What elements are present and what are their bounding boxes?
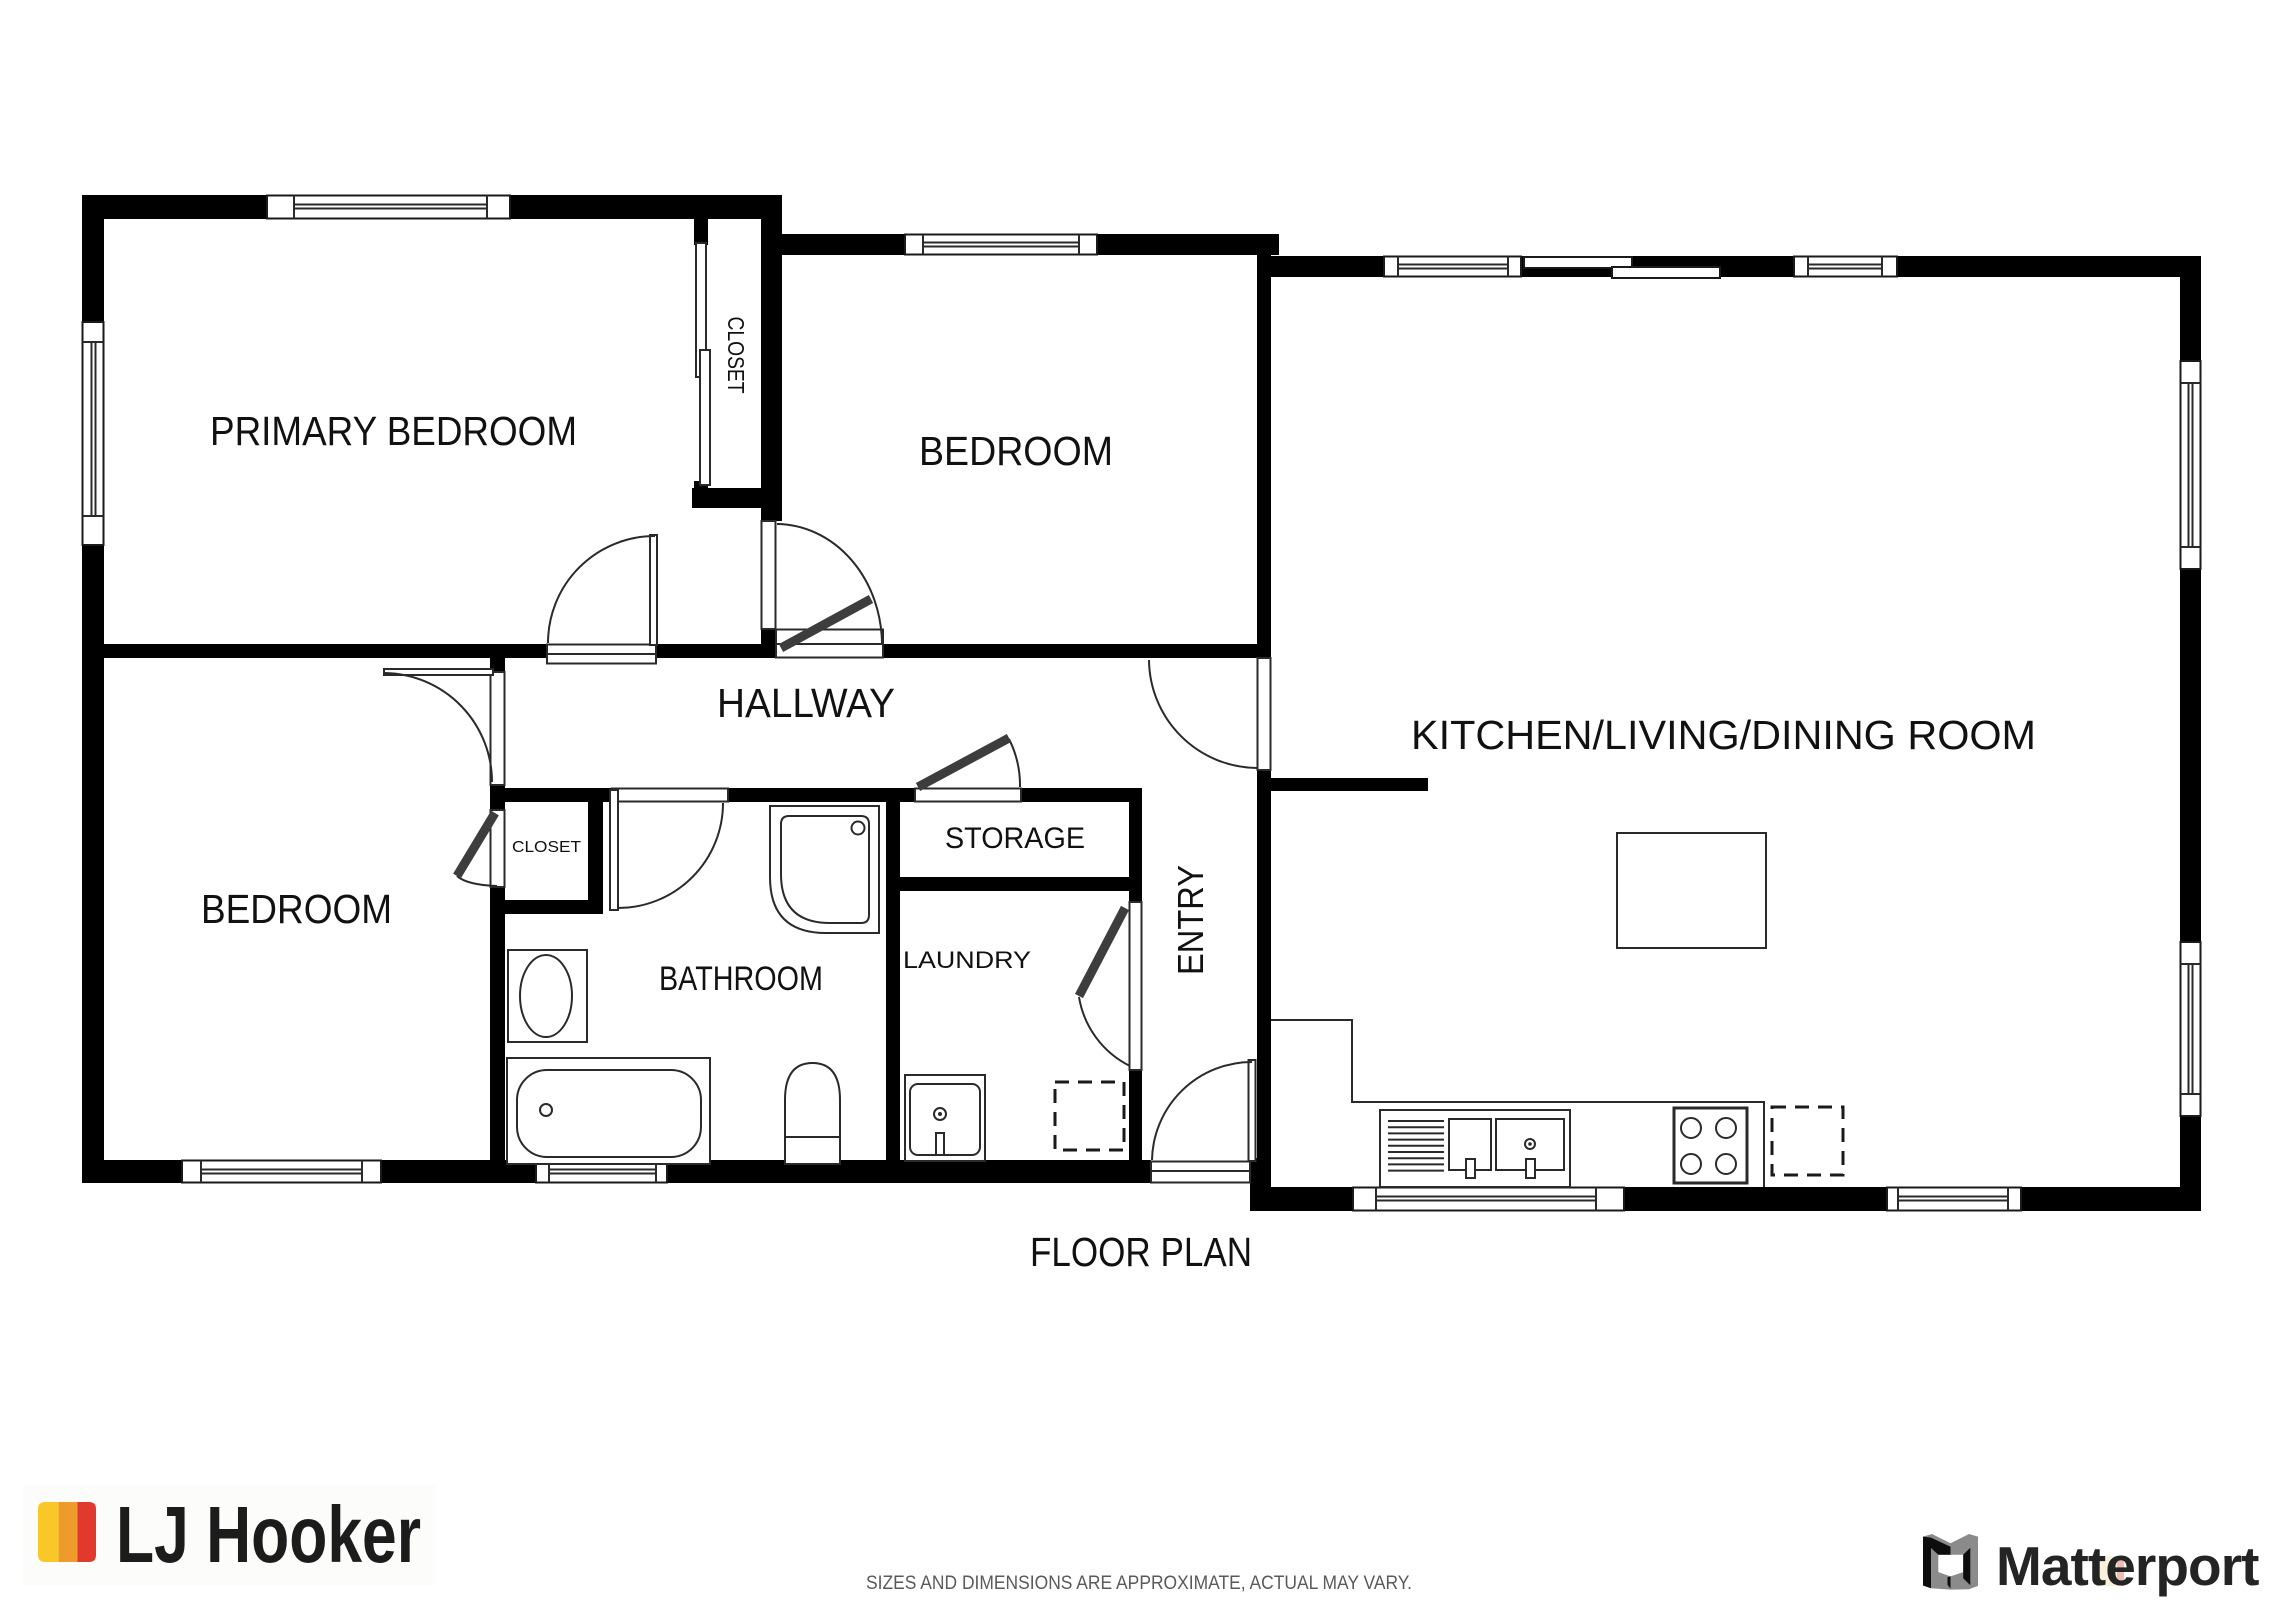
svg-text:LAUNDRY: LAUNDRY: [903, 947, 1031, 974]
svg-text:CLOSET: CLOSET: [723, 317, 749, 394]
svg-text:BATHROOM: BATHROOM: [659, 960, 823, 998]
svg-text:BEDROOM: BEDROOM: [201, 886, 392, 932]
svg-text:CLOSET: CLOSET: [512, 839, 581, 856]
svg-text:FLOOR PLAN: FLOOR PLAN: [1030, 1229, 1252, 1275]
svg-text:SIZES AND DIMENSIONS ARE APPRO: SIZES AND DIMENSIONS ARE APPROXIMATE, AC…: [866, 1573, 1412, 1594]
svg-text:STORAGE: STORAGE: [945, 822, 1085, 855]
svg-text:HALLWAY: HALLWAY: [717, 680, 895, 726]
svg-text:KITCHEN/LIVING/DINING ROOM: KITCHEN/LIVING/DINING ROOM: [1411, 712, 2036, 758]
svg-text:Matterport: Matterport: [1996, 1535, 2259, 1597]
svg-text:LJ Hooker: LJ Hooker: [116, 1490, 421, 1579]
svg-text:BEDROOM: BEDROOM: [919, 428, 1113, 474]
svg-text:ENTRY: ENTRY: [1170, 865, 1211, 975]
svg-text:PRIMARY BEDROOM: PRIMARY BEDROOM: [210, 408, 577, 454]
